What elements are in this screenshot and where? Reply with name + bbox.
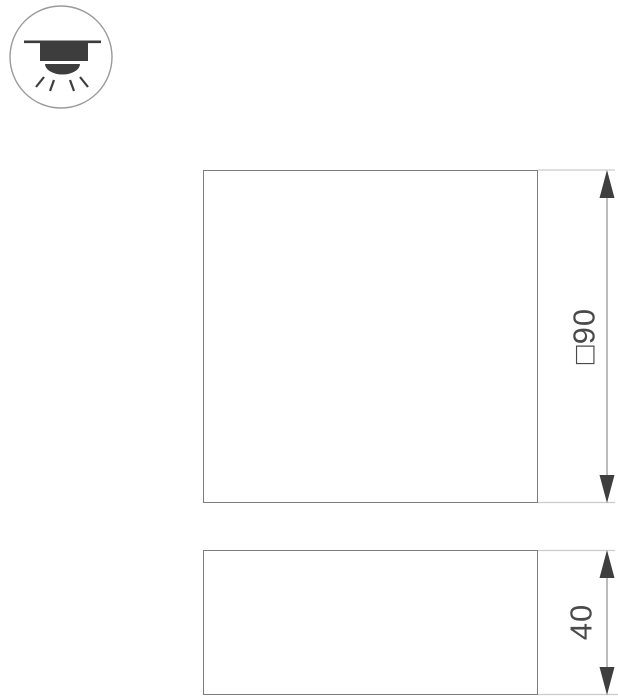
lamp-lens-dome — [45, 64, 80, 75]
light-ray-outer-right — [80, 77, 88, 87]
light-ray-inner-left — [50, 80, 54, 91]
surface-mounted-downlight-icon — [8, 4, 114, 110]
front-dimension-label: □90 — [569, 308, 600, 364]
side-view-outline — [203, 550, 538, 695]
arrowhead-front-down — [600, 475, 615, 503]
arrowhead-side-up — [600, 550, 615, 578]
light-ray-outer-left — [36, 77, 44, 87]
lamp-housing — [40, 43, 88, 62]
front-view-outline — [203, 170, 538, 503]
light-ray-inner-right — [70, 80, 74, 91]
technical-drawing-canvas: □90 40 — [0, 0, 618, 700]
mounting-type-badge — [8, 4, 114, 110]
side-dimension-label: 40 — [566, 604, 597, 640]
light-rays-icon — [36, 77, 88, 91]
arrowhead-side-down — [600, 667, 615, 695]
arrowhead-front-up — [600, 170, 615, 198]
